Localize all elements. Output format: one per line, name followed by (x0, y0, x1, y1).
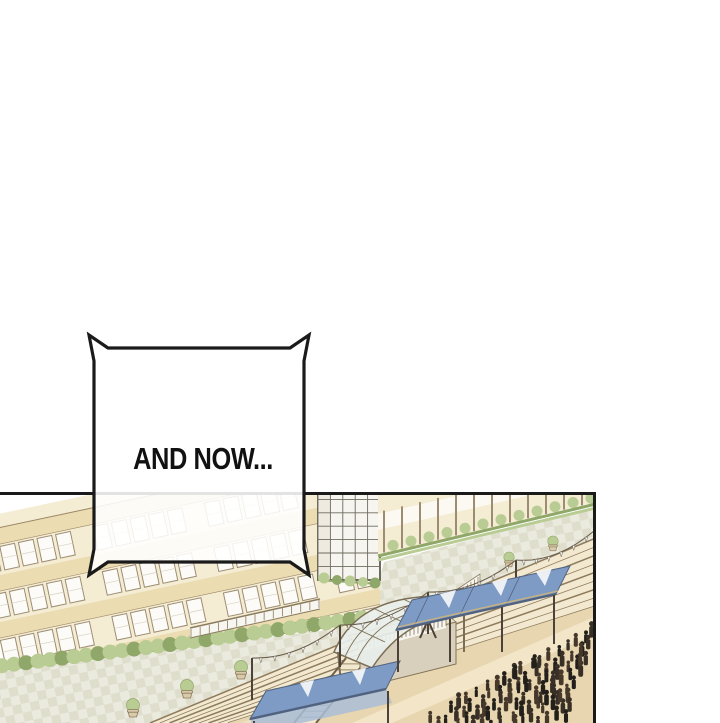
speech-bubble-text: AND NOW... (133, 442, 273, 477)
glass-tower (318, 486, 381, 589)
comic-panel-art: AND NOW... (0, 0, 720, 723)
comic-page: AND NOW... (0, 0, 720, 723)
